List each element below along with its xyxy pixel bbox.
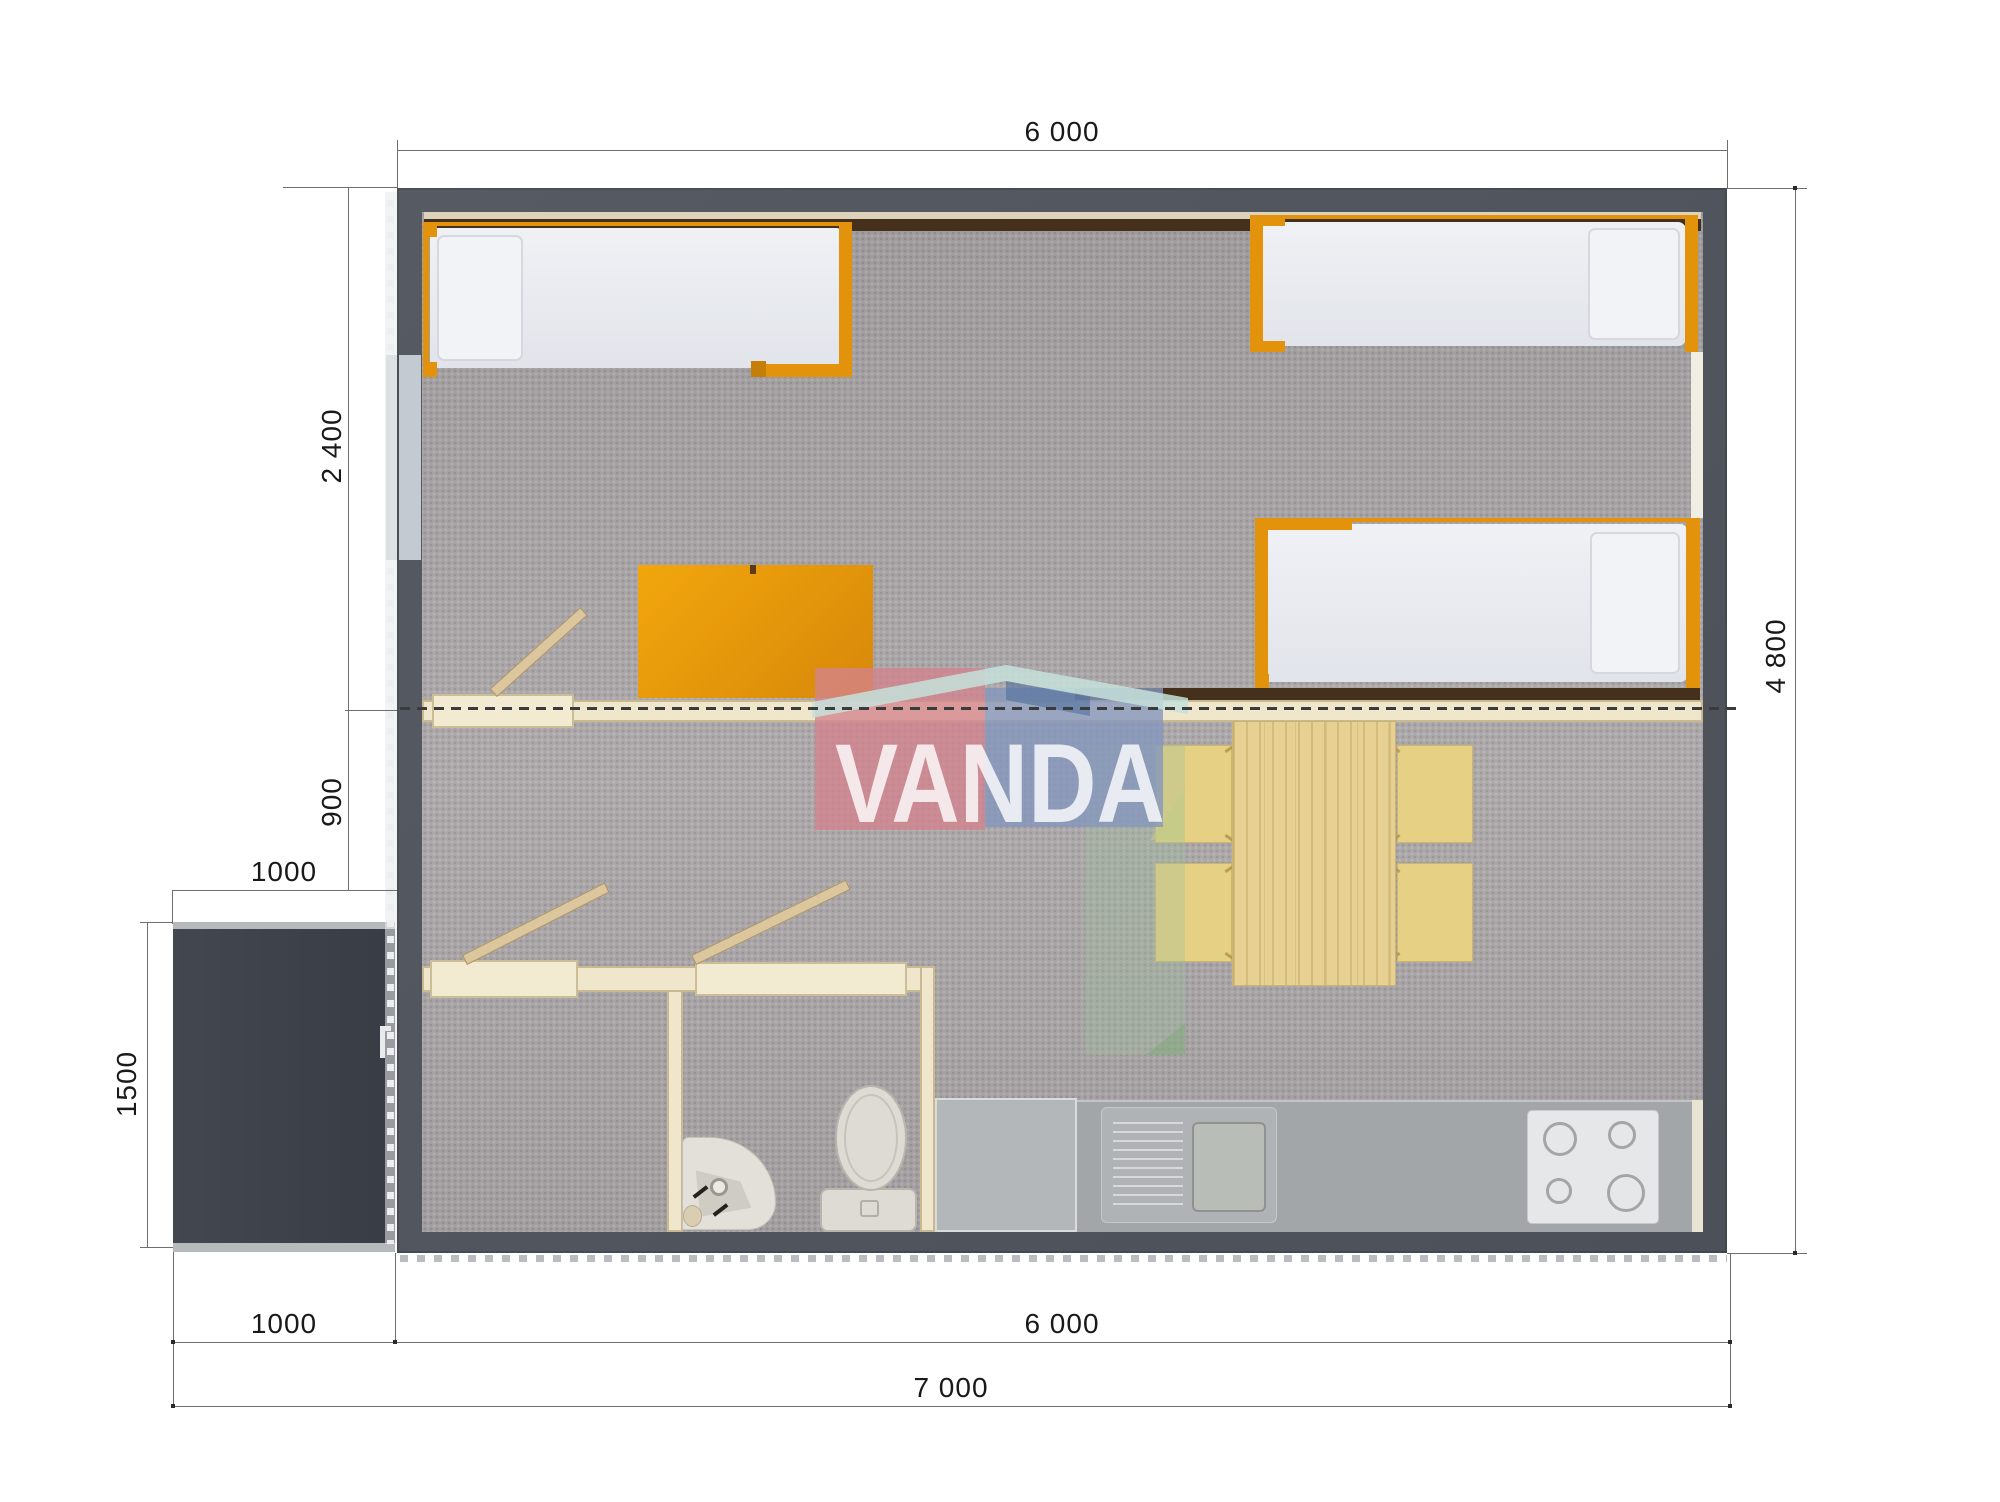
entry-door-handle-mark: [380, 1026, 391, 1058]
bed-frame-bracket: [1263, 341, 1285, 352]
extension-line: [345, 710, 397, 711]
dimension-line: [397, 150, 1727, 151]
bed-frame-rail: [1685, 215, 1698, 352]
dimension-label-hall-depth: 900: [316, 752, 348, 852]
dimension-label-bottom-total: 7 000: [891, 1372, 1011, 1404]
module-joint-dashed-line: [400, 707, 1742, 710]
bed-frame-post: [423, 222, 437, 237]
kitchen-cabinet-unit: [935, 1098, 1077, 1232]
bed-frame-rail: [423, 222, 429, 377]
bed-frame-rail: [424, 222, 852, 226]
bed-frame-bracket: [1268, 518, 1352, 530]
burner-icon: [1607, 1174, 1645, 1212]
watermark-text: VANDA: [835, 721, 1165, 846]
desk-notch: [750, 565, 756, 574]
extension-line: [397, 140, 398, 188]
dimension-dot: [1728, 1404, 1732, 1408]
extension-line: [395, 1253, 396, 1342]
dimension-label-bedroom-depth: 2 400: [316, 376, 348, 516]
bed-frame-bracket: [751, 361, 766, 377]
bathroom-door-frame: [430, 960, 578, 998]
dimension-line: [147, 922, 148, 1247]
extension-line: [173, 1252, 174, 1406]
dining-chair: [1397, 745, 1473, 843]
extension-line: [1730, 1253, 1731, 1406]
bed-frame-rail: [839, 222, 852, 377]
floor-plan-page: VANDA 6 000 2 400 900 1000 1500 4 800 10…: [0, 0, 2000, 1502]
dimension-label-right-depth: 4 800: [1760, 586, 1792, 726]
bottom-cladding-ribs: [400, 1255, 1727, 1262]
left-window-outer: [386, 355, 397, 560]
kitchen-right-sill: [1692, 1100, 1703, 1232]
pillow: [1590, 532, 1680, 674]
left-wall-window: [399, 355, 421, 560]
extension-line: [140, 1247, 173, 1248]
watermark-logo: VANDA: [790, 650, 1210, 1070]
dimension-line: [1795, 188, 1796, 1253]
dimension-dot: [393, 1340, 397, 1344]
dimension-line: [173, 1342, 1730, 1343]
dimension-label-bottom-porch: 1000: [234, 1308, 334, 1340]
bed-frame-rail: [1250, 215, 1263, 352]
extension-line: [172, 890, 173, 924]
extension-line: [1727, 140, 1728, 188]
bathroom-divider-wall: [667, 990, 683, 1232]
dimension-label-porch-depth: 1500: [111, 1014, 143, 1154]
dimension-dot: [1728, 1340, 1732, 1344]
porch-deck-edge-bottom: [173, 1243, 395, 1252]
dimension-label-porch-width: 1000: [234, 856, 334, 888]
porch-deck-edge-top: [173, 922, 395, 929]
bedroom-door-frame: [432, 694, 574, 728]
pillow: [1588, 228, 1680, 340]
bed-frame-post: [1255, 674, 1269, 688]
dining-chair: [1397, 863, 1473, 962]
pillow: [437, 235, 523, 361]
bed-frame-rail: [1250, 215, 1698, 219]
sink-drainboard: [1113, 1122, 1183, 1208]
entrance-porch: [173, 922, 395, 1252]
burner-icon: [1608, 1121, 1636, 1149]
dimension-line: [173, 1406, 1730, 1407]
dining-table: [1232, 721, 1396, 986]
right-wall-window-sill: [1691, 352, 1703, 518]
bed-frame-post: [423, 362, 437, 377]
sink-basin: [1192, 1122, 1266, 1212]
dimension-line: [172, 890, 397, 891]
toilet-flush-button: [860, 1200, 879, 1217]
dimension-line: [348, 187, 349, 890]
extension-line: [140, 922, 173, 923]
burner-icon: [1546, 1178, 1572, 1204]
dimension-dot: [1793, 1251, 1797, 1255]
dimension-label-bottom-module: 6 000: [1002, 1308, 1122, 1340]
bed-frame-rail: [1255, 518, 1268, 688]
dimension-label-top-width: 6 000: [1002, 116, 1122, 148]
dimension-dot: [171, 1404, 175, 1408]
bed-frame-bracket: [1263, 215, 1285, 226]
burner-icon: [1543, 1122, 1577, 1156]
dimension-dot: [171, 1340, 175, 1344]
dimension-dot: [1793, 186, 1797, 190]
faucet-icon: [710, 1178, 728, 1196]
soap-bottle: [683, 1205, 702, 1227]
bed-frame-rail: [1686, 518, 1700, 688]
toilet-seat-ring: [844, 1094, 898, 1182]
extension-line: [283, 187, 397, 188]
bed-frame-rail: [757, 364, 852, 377]
